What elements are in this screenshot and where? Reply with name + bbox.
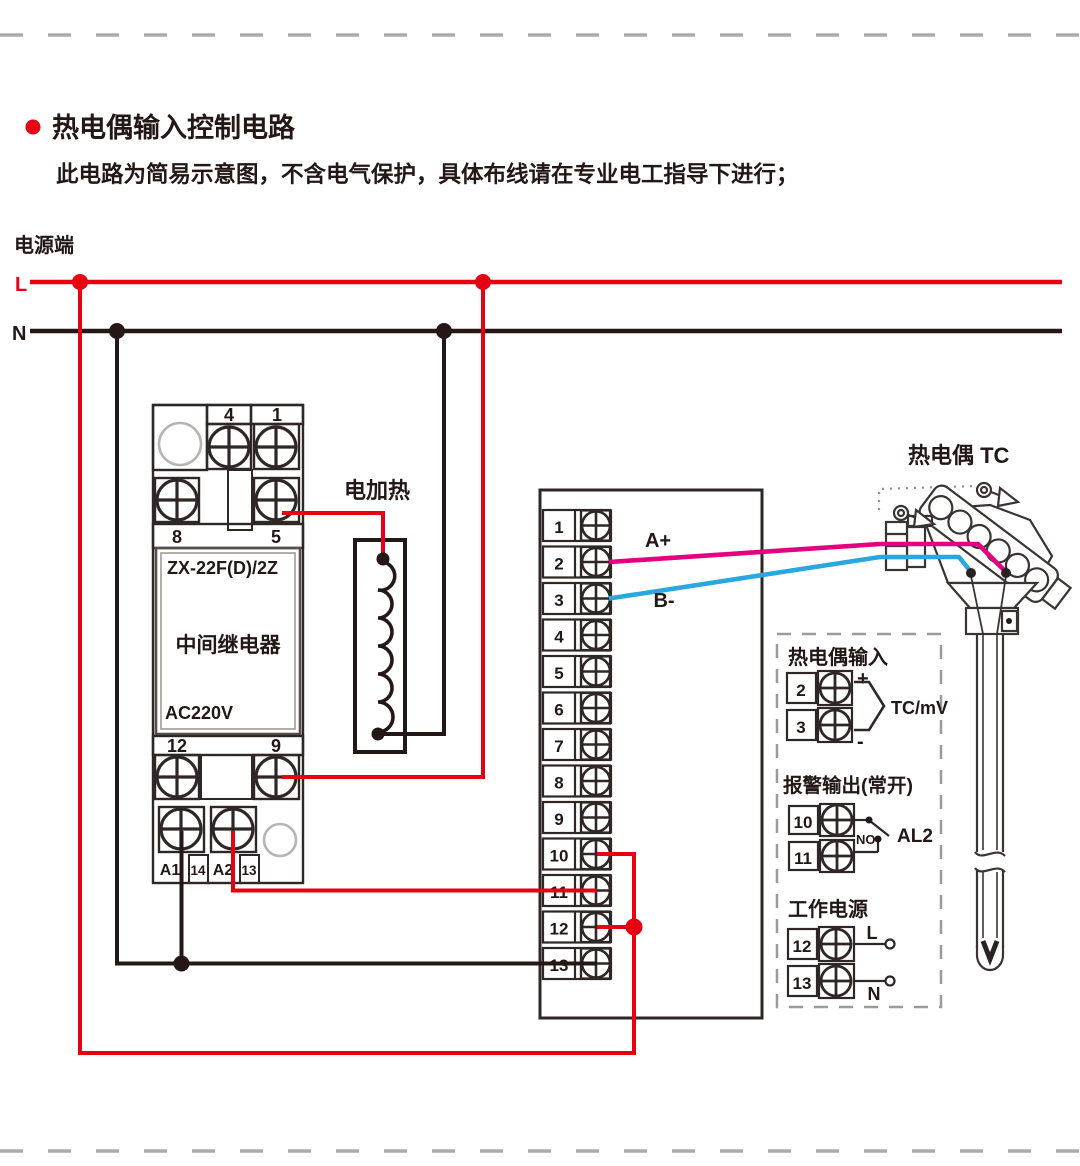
screw-terminal-icon xyxy=(209,427,249,467)
alarm-contact-label: NO xyxy=(856,832,876,847)
page-subtitle: 此电路为简易示意图，不含电气保护，具体布线请在专业电工指导下进行； xyxy=(56,161,799,187)
supply-section: 工作电源 12 13 L N xyxy=(788,897,895,1004)
live-line-label: L xyxy=(15,274,27,296)
relay-model-label: ZX-22F(D)/2Z xyxy=(167,558,278,578)
wiring-diagram-page: 热电偶输入控制电路 此电路为简易示意图，不含电气保护，具体布线请在专业电工指导下… xyxy=(0,0,1080,1166)
screw-terminal-icon xyxy=(582,621,610,649)
relay-terminal-14-label: 14 xyxy=(190,863,206,878)
screw-terminal-icon xyxy=(256,427,296,467)
screw-terminal-icon xyxy=(822,841,852,871)
relay-unit: 4 1 8 5 ZX-22F(D)/2Z 中间继电器 AC220V 12 9 xyxy=(153,405,303,883)
tc-input-title: 热电偶输入 xyxy=(788,645,888,669)
alarm-section: 报警输出(常开) 10 11 NO AL2 xyxy=(783,774,933,872)
relay-terminal-12-label: 12 xyxy=(167,736,187,756)
supply-terminal-13: 13 xyxy=(793,974,812,993)
junction-dot xyxy=(475,274,491,290)
alarm-output-label: AL2 xyxy=(897,826,933,847)
screw-terminal-icon xyxy=(822,805,852,835)
terminal-number: 10 xyxy=(550,847,569,866)
relay-name-label: 中间继电器 xyxy=(176,633,282,657)
supply-neutral-label: N xyxy=(868,984,881,1004)
junction-dot xyxy=(174,956,190,972)
io-panel: 热电偶输入 2 3 + - TC/mV 报警输出(常开) 10 11 xyxy=(777,634,948,1007)
supply-title: 工作电源 xyxy=(788,897,868,921)
relay-terminal-a1-label: A1 xyxy=(160,862,181,879)
screw-terminal-icon xyxy=(820,673,850,703)
tc-junction-arrow-icon xyxy=(983,941,997,959)
screw-terminal-icon xyxy=(582,694,610,722)
tc-terminal-node xyxy=(1001,568,1011,578)
tc-input-section: 热电偶输入 2 3 + - TC/mV xyxy=(787,645,948,753)
terminal-block: 1 2 3 4 5 6 7 8 9 10 11 12 13 xyxy=(540,490,762,1018)
circuit-diagram-canvas: 热电偶输入控制电路 此电路为简易示意图，不含电气保护，具体布线请在专业电工指导下… xyxy=(0,0,1080,1166)
tc-funnel xyxy=(948,583,1037,608)
neutral-line-label: N xyxy=(12,323,26,345)
terminal-number: 3 xyxy=(554,591,563,610)
heater-bottom-node xyxy=(372,728,385,741)
tc-plus-wire-label: A+ xyxy=(645,530,671,552)
tc-minus-wire-label: B- xyxy=(653,590,674,612)
screw-terminal-icon xyxy=(157,757,197,797)
relay-terminal-5-label: 5 xyxy=(271,527,281,547)
terminal-number: 12 xyxy=(550,920,569,939)
terminal-number: 6 xyxy=(554,701,563,720)
relay-terminal-13-label: 13 xyxy=(241,863,257,878)
heater-top-node xyxy=(377,553,390,566)
supply-live-label: L xyxy=(867,923,878,943)
power-rails: 电源端 L N xyxy=(12,234,1062,345)
relay-terminal-9-label: 9 xyxy=(271,736,281,756)
screw-terminal-icon xyxy=(582,731,610,759)
heater-label: 电加热 xyxy=(344,478,410,503)
relay-terminal-8-label: 8 xyxy=(172,527,182,547)
tc-terminal-node xyxy=(966,568,976,578)
junction-dot xyxy=(72,274,88,290)
screw-terminal-icon xyxy=(582,548,610,576)
screw-terminal-icon xyxy=(157,480,197,520)
screw-terminal-icon xyxy=(582,512,610,540)
terminal-block-body xyxy=(540,490,762,1018)
terminal-number: 9 xyxy=(554,810,563,829)
tc-cap-screw-top-icon xyxy=(977,483,1018,506)
screw-terminal-icon xyxy=(582,658,610,686)
alarm-title: 报警输出(常开) xyxy=(783,774,913,797)
alarm-terminal-10: 10 xyxy=(794,813,813,832)
tc-input-plus-label: + xyxy=(857,668,869,690)
heater: 电加热 xyxy=(344,478,410,752)
terminal-number: 2 xyxy=(554,555,563,574)
bullet-icon xyxy=(26,120,41,135)
junction-dot xyxy=(109,323,125,339)
page-title: 热电偶输入控制电路 xyxy=(52,112,296,143)
tc-signal-label: TC/mV xyxy=(891,698,948,718)
terminal-number: 5 xyxy=(554,664,563,683)
supply-terminal-12: 12 xyxy=(793,937,812,956)
terminal-number: 4 xyxy=(554,628,564,647)
tube-break-icon xyxy=(975,852,1005,856)
power-terminal-label: 电源端 xyxy=(14,234,74,257)
header: 热电偶输入控制电路 此电路为简易示意图，不含电气保护，具体布线请在专业电工指导下… xyxy=(26,112,799,187)
screw-terminal-icon xyxy=(582,585,610,613)
screw-terminal-icon xyxy=(582,804,610,832)
junction-dot xyxy=(436,323,452,339)
screw-terminal-icon xyxy=(820,710,850,740)
relay-terminal-1-label: 1 xyxy=(272,405,282,425)
junction-dot xyxy=(626,919,643,936)
terminal-number: 8 xyxy=(554,774,563,793)
screw-terminal-icon xyxy=(821,966,851,996)
tc-input-terminal-3: 3 xyxy=(796,718,805,737)
relay-voltage-label: AC220V xyxy=(165,703,233,723)
relay-terminal-4-label: 4 xyxy=(224,405,234,425)
terminal-number: 1 xyxy=(554,518,563,537)
terminal-number: 7 xyxy=(554,737,563,756)
screw-terminal-icon xyxy=(582,767,610,795)
tc-input-terminal-2: 2 xyxy=(796,681,805,700)
relay-terminal-a2-label: A2 xyxy=(213,862,234,879)
thermocouple-label: 热电偶 TC xyxy=(908,443,1010,468)
screw-terminal-icon xyxy=(821,929,851,959)
tc-probe xyxy=(975,634,1005,970)
alarm-terminal-11: 11 xyxy=(794,849,812,868)
tc-input-minus-label: - xyxy=(857,731,864,753)
